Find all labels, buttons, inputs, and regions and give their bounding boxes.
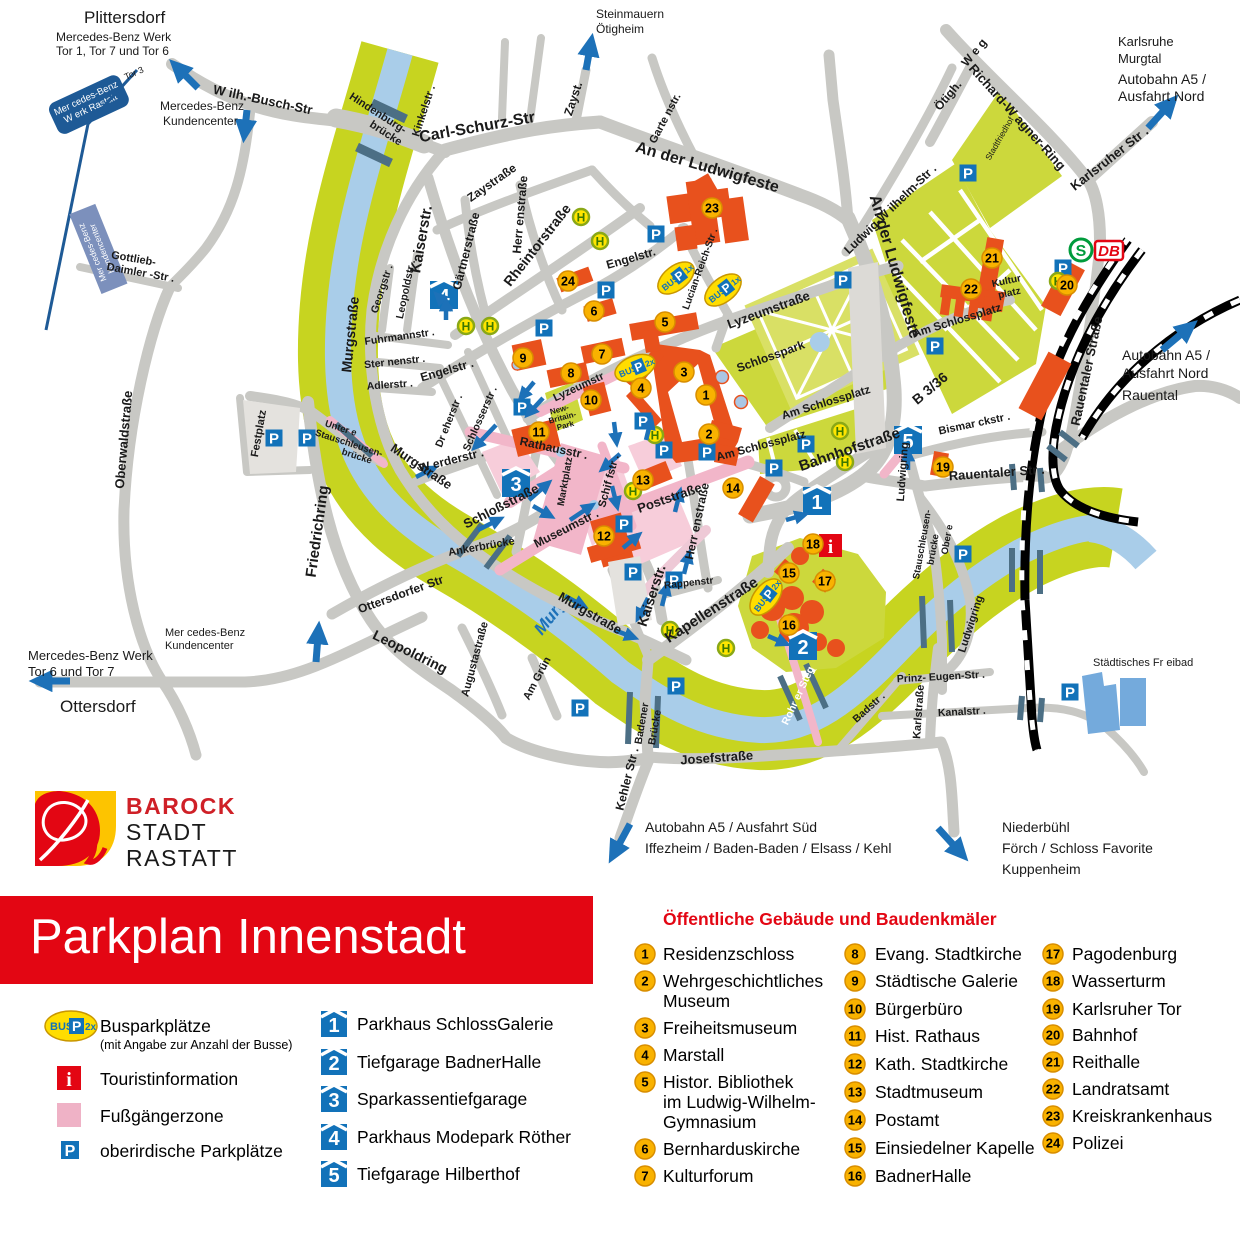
svg-text:2x: 2x [85, 1022, 97, 1033]
svg-text:Einsiedelner Kapelle: Einsiedelner Kapelle [875, 1138, 1035, 1158]
svg-text:12: 12 [597, 530, 611, 544]
svg-text:6: 6 [641, 1142, 648, 1157]
svg-text:Evang. Stadtkirche: Evang. Stadtkirche [875, 944, 1022, 964]
svg-text:RASTATT: RASTATT [126, 845, 238, 871]
svg-text:18: 18 [806, 538, 820, 552]
svg-text:21: 21 [985, 252, 999, 266]
svg-text:20: 20 [1060, 279, 1074, 293]
svg-text:14: 14 [726, 482, 740, 496]
svg-text:Touristinformation: Touristinformation [100, 1069, 238, 1089]
svg-text:Sparkassentiefgarage: Sparkassentiefgarage [357, 1089, 527, 1109]
svg-text:8: 8 [851, 947, 858, 962]
svg-text:Ausfahrt Nord: Ausfahrt Nord [1118, 88, 1204, 104]
svg-text:(mit Angabe zur Anzahl der Bus: (mit Angabe zur Anzahl der Busse) [100, 1038, 292, 1052]
svg-text:22: 22 [964, 283, 978, 297]
svg-text:Steinmauern: Steinmauern [596, 7, 664, 21]
svg-text:P: P [72, 1018, 81, 1034]
svg-text:Tor 6 und Tor 7: Tor 6 und Tor 7 [28, 664, 114, 679]
svg-text:2: 2 [641, 974, 648, 989]
svg-text:Kundencenter: Kundencenter [163, 114, 238, 128]
svg-text:P: P [65, 1143, 76, 1160]
svg-text:22: 22 [1046, 1082, 1060, 1097]
svg-text:Förch / Schloss Favorite: Förch / Schloss Favorite [1002, 840, 1153, 856]
svg-text:S: S [1076, 243, 1087, 260]
svg-text:Mer cedes-Benz: Mer cedes-Benz [165, 627, 245, 639]
svg-text:Gymnasium: Gymnasium [663, 1112, 756, 1132]
svg-text:DB: DB [1098, 243, 1120, 260]
svg-text:11: 11 [848, 1029, 862, 1044]
svg-text:Parkhaus Modepark Röther: Parkhaus Modepark Röther [357, 1127, 571, 1147]
svg-text:Busparkplätze: Busparkplätze [100, 1016, 211, 1036]
svg-text:Mercedes-Benz Werk: Mercedes-Benz Werk [28, 648, 153, 663]
svg-text:19: 19 [1046, 1002, 1060, 1017]
svg-text:Histor. Bibliothek: Histor. Bibliothek [663, 1072, 794, 1092]
svg-text:Tiefgarage Hilberthof: Tiefgarage Hilberthof [357, 1164, 520, 1184]
svg-text:1: 1 [811, 492, 822, 514]
svg-text:13: 13 [636, 474, 650, 488]
svg-text:24: 24 [561, 275, 575, 289]
svg-text:Karlsruhe: Karlsruhe [1118, 34, 1174, 49]
svg-text:17: 17 [818, 575, 832, 589]
svg-text:Bürgerbüro: Bürgerbüro [875, 999, 963, 1019]
svg-text:Leopoldring: Leopoldring [370, 627, 450, 677]
svg-text:17: 17 [1046, 947, 1060, 962]
svg-text:5: 5 [641, 1075, 648, 1090]
svg-text:15: 15 [848, 1141, 862, 1156]
svg-text:Hist. Rathaus: Hist. Rathaus [875, 1026, 980, 1046]
svg-text:Karlsruher Str .: Karlsruher Str . [1067, 123, 1151, 193]
svg-text:2: 2 [328, 1053, 339, 1075]
svg-text:Bahnhof: Bahnhof [1072, 1025, 1137, 1045]
svg-text:10: 10 [584, 394, 598, 408]
svg-text:3: 3 [328, 1090, 339, 1112]
svg-text:Städtisches Fr eibad: Städtisches Fr eibad [1093, 657, 1193, 669]
svg-text:13: 13 [848, 1085, 862, 1100]
svg-text:Museum: Museum [663, 991, 730, 1011]
svg-text:Ausfahrt Nord: Ausfahrt Nord [1122, 365, 1208, 381]
svg-text:7: 7 [599, 348, 606, 362]
svg-text:Iffezheim / Baden-Baden / Elsa: Iffezheim / Baden-Baden / Elsass / Kehl [645, 840, 891, 856]
svg-text:6: 6 [591, 305, 598, 319]
svg-text:Stadtmuseum: Stadtmuseum [875, 1082, 983, 1102]
svg-text:Kreiskrankenhaus: Kreiskrankenhaus [1072, 1106, 1212, 1126]
svg-text:1: 1 [703, 389, 710, 403]
svg-text:Autobahn A5 / Ausfahrt Süd: Autobahn A5 / Ausfahrt Süd [645, 819, 817, 835]
svg-text:2: 2 [797, 637, 808, 659]
svg-text:Karlsruher Tor: Karlsruher Tor [1072, 999, 1182, 1019]
svg-text:24: 24 [1046, 1136, 1061, 1151]
svg-text:Kundencenter: Kundencenter [165, 640, 234, 652]
svg-text:Autobahn A5 /: Autobahn A5 / [1118, 71, 1206, 87]
svg-text:5: 5 [662, 316, 669, 330]
svg-text:4: 4 [638, 382, 645, 396]
svg-text:BadnerHalle: BadnerHalle [875, 1166, 971, 1186]
svg-text:Tiefgarage BadnerHalle: Tiefgarage BadnerHalle [357, 1052, 541, 1072]
svg-text:Landratsamt: Landratsamt [1072, 1079, 1169, 1099]
svg-text:im Ludwig-Wilhelm-: im Ludwig-Wilhelm- [663, 1092, 816, 1112]
svg-text:10: 10 [848, 1002, 862, 1017]
svg-text:Niederbühl: Niederbühl [1002, 819, 1070, 835]
svg-text:Kath. Stadtkirche: Kath. Stadtkirche [875, 1054, 1008, 1074]
svg-text:Mercedes-Benz Werk: Mercedes-Benz Werk [56, 30, 172, 44]
svg-text:Kuppenheim: Kuppenheim [1002, 861, 1081, 877]
svg-text:14: 14 [848, 1113, 863, 1128]
svg-text:i: i [66, 1069, 72, 1091]
svg-text:i: i [828, 537, 833, 558]
svg-text:1: 1 [328, 1015, 339, 1037]
svg-text:Öffentliche Gebäude und Bauden: Öffentliche Gebäude und Baudenkmäler [663, 909, 997, 929]
svg-text:8: 8 [568, 367, 575, 381]
svg-text:Reithalle: Reithalle [1072, 1052, 1140, 1072]
svg-text:15: 15 [782, 567, 796, 581]
svg-text:Ottersdorf: Ottersdorf [60, 697, 136, 716]
svg-text:Parkhaus SchlossGalerie: Parkhaus SchlossGalerie [357, 1014, 553, 1034]
svg-text:4: 4 [328, 1128, 340, 1150]
svg-text:Polizei: Polizei [1072, 1133, 1124, 1153]
svg-text:Residenzschloss: Residenzschloss [663, 944, 795, 964]
svg-text:Wasserturm: Wasserturm [1072, 971, 1166, 991]
svg-text:Karlstraße: Karlstraße [911, 684, 927, 739]
svg-text:18: 18 [1046, 974, 1060, 989]
svg-text:Freiheitsmuseum: Freiheitsmuseum [663, 1018, 797, 1038]
svg-text:Wehrgeschichtliches: Wehrgeschichtliches [663, 971, 823, 991]
svg-text:12: 12 [848, 1057, 862, 1072]
svg-text:4: 4 [641, 1048, 649, 1063]
svg-text:Postamt: Postamt [875, 1110, 939, 1130]
svg-text:oberirdische Parkplätze: oberirdische Parkplätze [100, 1141, 283, 1161]
svg-text:2: 2 [706, 428, 713, 442]
svg-text:BAROCK: BAROCK [126, 793, 236, 819]
svg-text:Pagodenburg: Pagodenburg [1072, 944, 1177, 964]
svg-text:23: 23 [1046, 1109, 1060, 1124]
svg-text:Rauental: Rauental [1122, 387, 1178, 403]
svg-text:Tor 1, Tor 7 und Tor 6: Tor 1, Tor 7 und Tor 6 [56, 44, 169, 58]
svg-text:20: 20 [1046, 1028, 1060, 1043]
svg-text:Engelstr .: Engelstr . [419, 356, 475, 385]
svg-text:9: 9 [520, 352, 527, 366]
svg-text:Städtische Galerie: Städtische Galerie [875, 971, 1018, 991]
svg-text:Mercedes-Benz: Mercedes-Benz [160, 99, 244, 113]
svg-text:Fußgängerzone: Fußgängerzone [100, 1106, 224, 1126]
svg-text:23: 23 [705, 202, 719, 216]
svg-text:21: 21 [1046, 1055, 1060, 1070]
svg-text:Autobahn A5 /: Autobahn A5 / [1122, 347, 1210, 363]
svg-text:3: 3 [681, 366, 688, 380]
svg-text:Tor 3: Tor 3 [123, 65, 145, 82]
svg-text:Kulturforum: Kulturforum [663, 1166, 753, 1186]
svg-text:Kanalstr .: Kanalstr . [938, 705, 986, 719]
svg-text:9: 9 [851, 974, 858, 989]
svg-text:16: 16 [848, 1169, 862, 1184]
svg-text:Bernharduskirche: Bernharduskirche [663, 1139, 800, 1159]
svg-text:5: 5 [328, 1165, 339, 1187]
svg-text:16: 16 [782, 619, 796, 633]
svg-text:Ötigheim: Ötigheim [596, 22, 644, 36]
svg-text:Plittersdorf: Plittersdorf [84, 8, 166, 27]
svg-text:STADT: STADT [126, 819, 207, 845]
svg-text:Murgtal: Murgtal [1118, 51, 1161, 66]
svg-text:1: 1 [641, 947, 648, 962]
svg-text:3: 3 [641, 1021, 648, 1036]
svg-text:Marstall: Marstall [663, 1045, 724, 1065]
svg-text:7: 7 [641, 1169, 648, 1184]
